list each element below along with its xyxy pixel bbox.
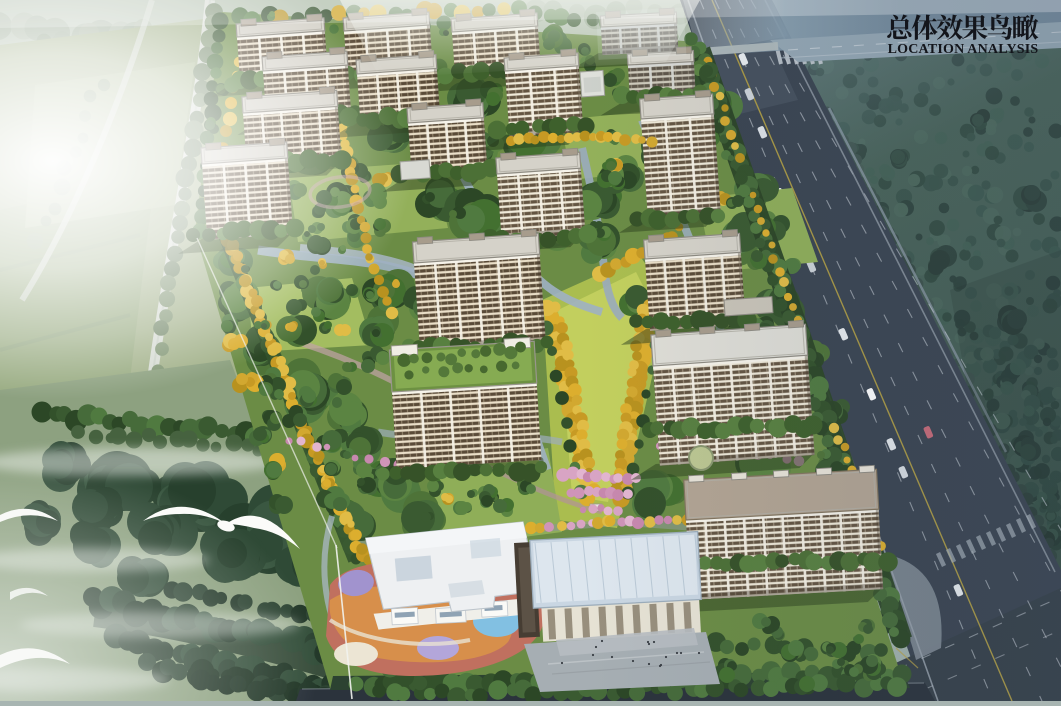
svg-text:LOCATION ANALYSIS: LOCATION ANALYSIS [888, 42, 1039, 57]
